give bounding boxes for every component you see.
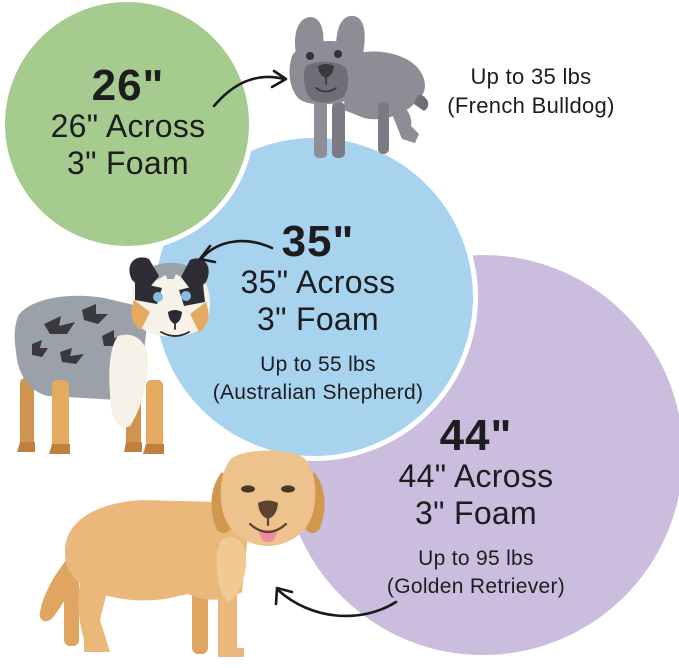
- french-bulldog-illustration: [286, 14, 434, 162]
- size-44-across: 44" Across: [387, 458, 565, 495]
- label-size-44: 44" 44" Across 3" Foam Up to 95 lbs (Gol…: [387, 414, 565, 600]
- weight-26: Up to 35 lbs: [447, 63, 614, 92]
- breed-44: (Golden Retriever): [387, 573, 565, 601]
- weight-35: Up to 55 lbs: [213, 351, 424, 379]
- arrow-to-golden-retriever-icon: [266, 578, 402, 624]
- australian-shepherd-illustration: [0, 252, 232, 466]
- size-35-across: 35" Across: [213, 264, 424, 301]
- arrow-to-french-bulldog-icon: [208, 66, 300, 114]
- label-size-35: 35" 35" Across 3" Foam Up to 55 lbs (Aus…: [213, 220, 424, 406]
- breed-26: (French Bulldog): [447, 92, 614, 121]
- weight-44: Up to 95 lbs: [387, 545, 565, 573]
- breed-35: (Australian Shepherd): [213, 379, 424, 407]
- size-35-badge: 35": [213, 220, 424, 264]
- size-35-foam: 3" Foam: [213, 301, 424, 338]
- size-26-badge: 26": [51, 64, 206, 108]
- label-size-26: 26" 26" Across 3" Foam: [51, 64, 206, 183]
- golden-retriever-illustration: [20, 444, 338, 668]
- label-weight-french-bulldog: Up to 35 lbs (French Bulldog): [447, 63, 614, 120]
- size-26-foam: 3" Foam: [51, 145, 206, 182]
- size-44-foam: 3" Foam: [387, 495, 565, 532]
- size-comparison-diagram: 26" 26" Across 3" Foam Up to 35 lbs (Fre…: [0, 0, 679, 668]
- size-44-badge: 44": [387, 414, 565, 458]
- size-26-across: 26" Across: [51, 108, 206, 145]
